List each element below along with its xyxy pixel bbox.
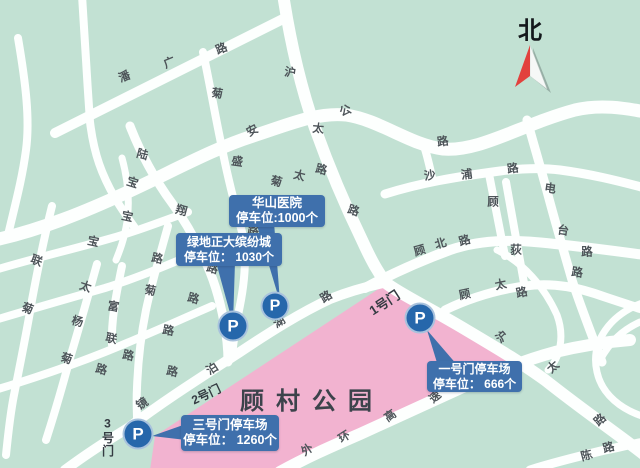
road-label: 菊 <box>269 176 283 190</box>
parking-icon-gate3: P <box>123 419 154 450</box>
callout-title: 一号门停车场 <box>438 362 510 377</box>
road-label: 路 <box>571 268 584 281</box>
callout-gate3-parking: 三号门停车场 停车位： 1260个 <box>181 415 279 451</box>
parking-icon-gate1: P <box>405 303 436 334</box>
road-label: 路 <box>437 137 450 150</box>
road-label: 太 <box>312 124 324 136</box>
road-label: 富 <box>106 301 119 314</box>
callout-title: 三号门停车场 <box>192 418 267 433</box>
callout-parking-count: 停车位:1000个 <box>236 211 318 226</box>
road-label: 荻 <box>510 245 522 257</box>
park-title: 顾村公园 <box>240 381 384 416</box>
road-label: 路 <box>165 366 179 380</box>
road-label: 路 <box>314 164 328 178</box>
callout-parking-count: 停车位： 666个 <box>433 377 516 392</box>
parking-icon-huashan: P <box>261 292 290 321</box>
parking-letter: P <box>132 426 143 443</box>
callout-parking-count: 停车位： 1030个 <box>184 250 274 265</box>
road-label: 菊 <box>211 89 224 102</box>
road-label: 盛 <box>231 157 244 170</box>
callout-huashan-hospital: 华山医院 停车位:1000个 <box>229 195 325 227</box>
road-label: 宝 <box>86 236 100 250</box>
road-label: 路 <box>507 164 520 177</box>
road-label: 路 <box>161 325 174 338</box>
road-label: 太 <box>494 279 508 293</box>
road-label: 路 <box>581 247 593 259</box>
road-label: 菊 <box>143 285 156 298</box>
road-label: 浦 <box>461 170 474 183</box>
parking-letter: P <box>227 318 238 335</box>
parking-letter: P <box>270 298 281 314</box>
road-label: 路 <box>150 253 164 267</box>
road-label: 顾 <box>487 197 499 209</box>
road-label: 顾 <box>458 289 472 303</box>
north-label: 北 <box>518 11 542 46</box>
road-label: 路 <box>515 287 529 301</box>
callout-title: 华山医院 <box>252 196 302 211</box>
road-label: 电 <box>544 184 557 197</box>
road-label: 宝 <box>120 211 134 225</box>
road-label: 沙 <box>424 171 437 184</box>
parking-icon-greenland: P <box>218 311 249 342</box>
gate3-label: 3号门 <box>100 417 117 458</box>
map: 潘广路沪太路沪太路宝安公路菊盛路陆翔路宝路菊太路联菊宝太杨菊富联路路菊路路路沙浦… <box>0 0 640 468</box>
callout-title: 绿地正大缤纷城 <box>187 235 271 250</box>
callout-greenland-mall: 绿地正大缤纷城 停车位： 1030个 <box>176 233 282 266</box>
callout-parking-count: 停车位： 1260个 <box>183 433 277 448</box>
road-label: 联 <box>104 333 118 347</box>
parking-letter: P <box>414 310 425 327</box>
callout-gate1-parking: 一号门停车场 停车位： 666个 <box>427 361 522 392</box>
road-label: 太 <box>292 170 306 184</box>
road-label: 台 <box>557 226 570 239</box>
road-label: 沪 <box>284 68 297 81</box>
road-label: 路 <box>121 350 135 364</box>
